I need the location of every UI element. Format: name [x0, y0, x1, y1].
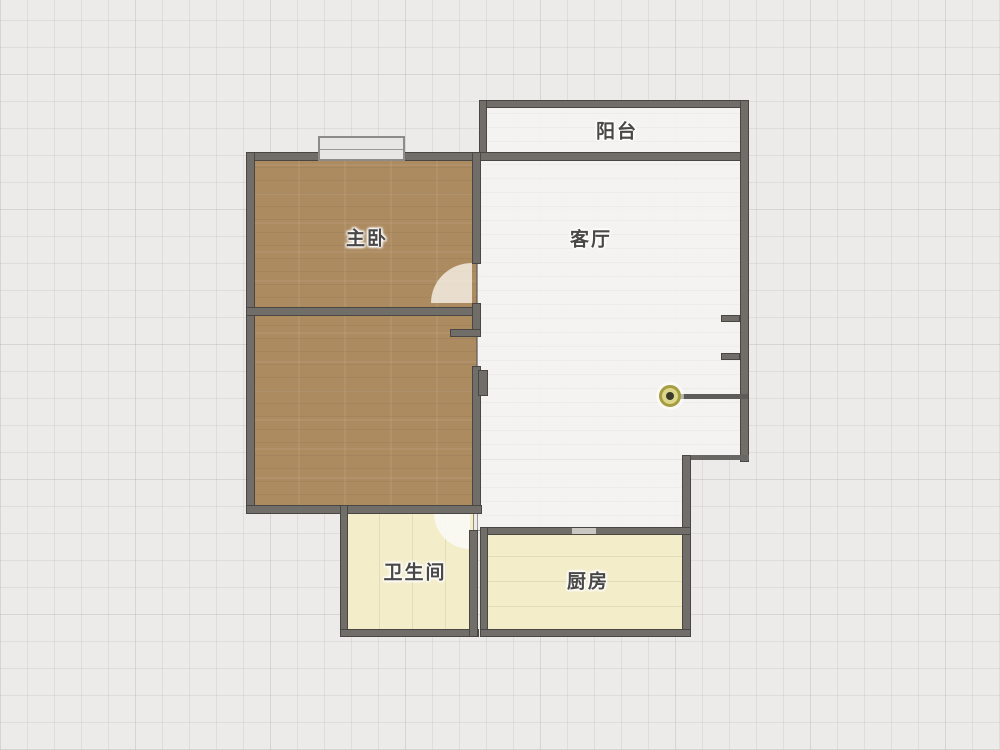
entry-door-knob-dot	[666, 392, 674, 400]
bedroom-right-wall-upper	[472, 152, 481, 264]
balcony-top-wall	[479, 100, 749, 108]
bathroom-right-wall	[469, 530, 478, 637]
right-wall	[740, 100, 749, 462]
bedroom-right-wall-mid	[472, 303, 481, 331]
kitchen-bottom-wall	[480, 629, 691, 637]
living-room-floor	[477, 157, 744, 460]
entry-door-leaf	[673, 394, 748, 399]
window-glass-line	[320, 149, 403, 150]
master-bedroom-label: 主卧	[346, 224, 388, 251]
bathroom-label: 卫生间	[383, 558, 446, 585]
living-room-floor-extension	[477, 457, 686, 531]
second-bedroom-door-stop	[478, 370, 488, 396]
balcony-label: 阳台	[596, 117, 638, 144]
kitchen-left-wall	[480, 527, 488, 637]
entry-door-knob-icon	[659, 385, 681, 407]
step-wall-horizontal	[686, 455, 749, 460]
right-wall-lower	[682, 455, 691, 637]
bathroom-left-wall	[340, 505, 348, 637]
left-wall	[246, 152, 255, 513]
floorplan-canvas: 阳台 主卧 客厅 卫生间 厨房	[0, 0, 1000, 750]
entry-door-jamb-top	[721, 315, 740, 322]
second-bedroom-door-jamb	[450, 329, 481, 337]
bathroom-bottom-wall	[340, 629, 479, 637]
second-bedroom-floor	[251, 312, 477, 509]
entry-door-jamb-bottom	[721, 353, 740, 360]
living-room-label: 客厅	[570, 225, 612, 252]
kitchen-label: 厨房	[567, 567, 609, 594]
master-bedroom-window	[318, 136, 405, 161]
second-bedroom-bottom-wall	[246, 505, 482, 514]
kitchen-door-gap	[572, 528, 596, 534]
bedroom-divider-wall	[246, 307, 481, 316]
